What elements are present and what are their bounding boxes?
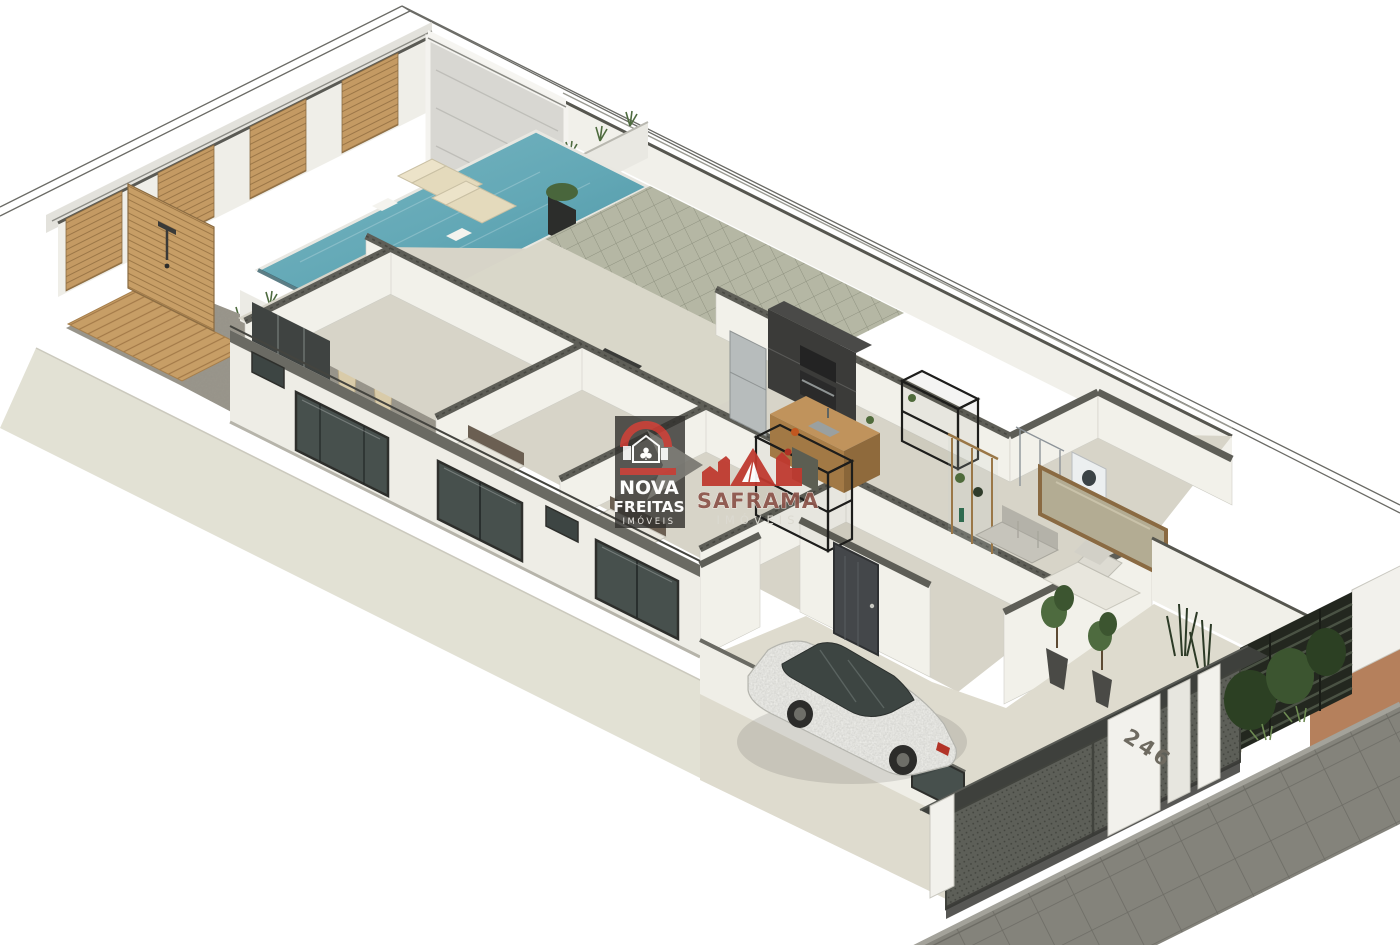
floorplan-render: 246 — [0, 0, 1400, 945]
plant — [908, 394, 916, 402]
refrigerator — [730, 331, 766, 436]
kettle — [785, 449, 792, 456]
shelf-plant — [955, 473, 965, 483]
plant — [866, 416, 874, 424]
door-handle-icon — [870, 604, 874, 608]
logo-subtitle: IMÓVEIS — [717, 512, 800, 527]
logo-line1: NOVA — [619, 477, 679, 499]
logo-line2: FREITAS — [613, 498, 684, 516]
logo-name: SAFRAMA — [697, 489, 819, 513]
bottle — [959, 508, 964, 522]
render-scene: 246 — [0, 0, 1400, 945]
pot-plant — [791, 428, 799, 436]
red-bar — [620, 468, 676, 475]
shelf-plant — [973, 487, 983, 497]
svg-text:♣: ♣ — [638, 445, 653, 465]
logo-line3: IMÓVEIS — [623, 515, 676, 527]
